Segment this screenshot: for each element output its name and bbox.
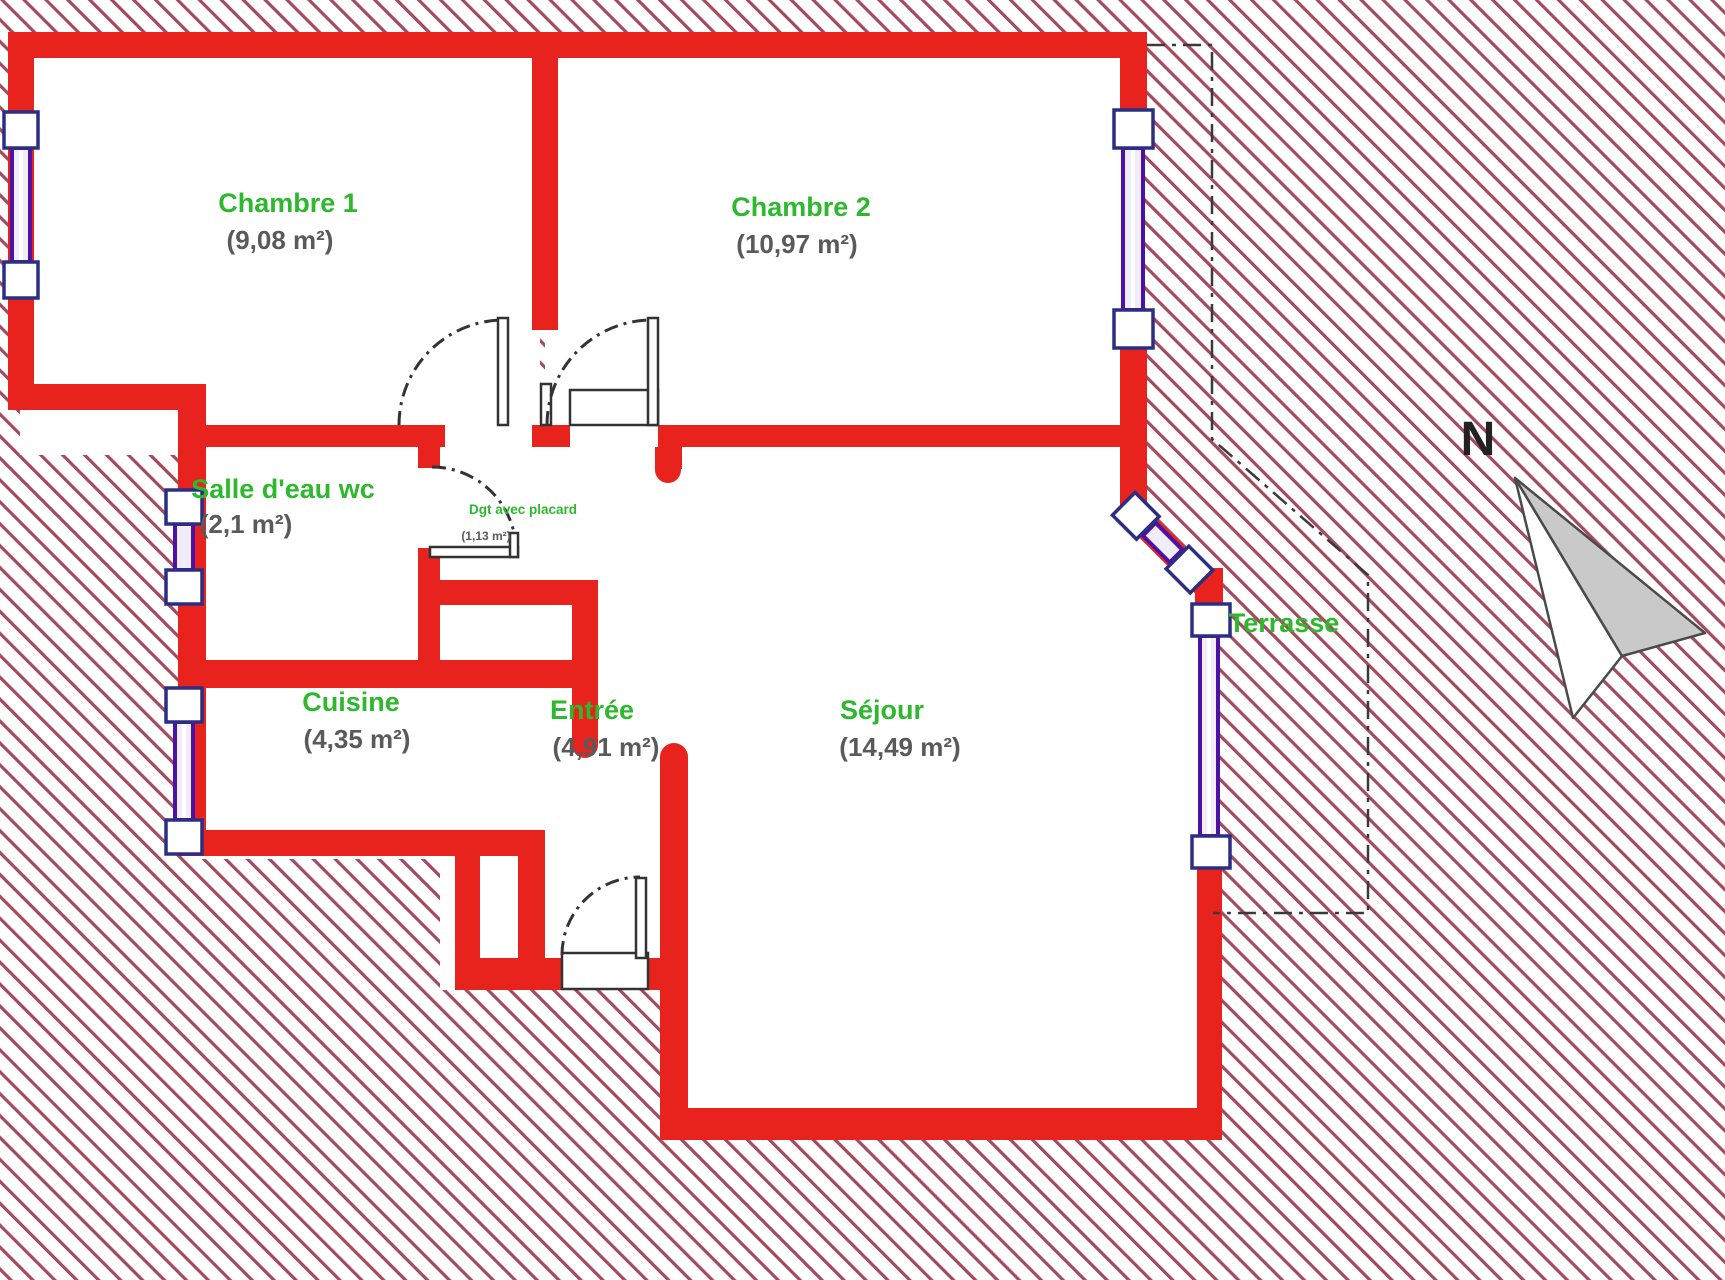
room-area: (2,1 m²)	[200, 509, 292, 539]
window-box	[1114, 310, 1153, 348]
wall-shaft-right	[518, 856, 545, 960]
wall-bath-divider-bottom	[418, 548, 440, 670]
interior-sejour	[660, 447, 1130, 1108]
door-leaf-end	[510, 533, 518, 557]
wall-chambres-divider	[532, 32, 558, 330]
room-area: (1,13 m²)	[461, 529, 510, 543]
room-name: Entrée	[550, 695, 634, 725]
window-box	[1114, 110, 1153, 148]
room-name: Terrasse	[1229, 608, 1340, 638]
wall-cap-dgt-sejour	[655, 457, 681, 483]
room-label-terrasse: Terrasse	[1229, 608, 1340, 638]
wall-chambres-bottom-c	[658, 425, 1147, 447]
window-box	[4, 262, 38, 298]
room-area: (9,08 m²)	[227, 225, 334, 255]
room-area: (4,91 m²)	[553, 732, 660, 762]
wall-chambre1-bottom-left	[8, 384, 206, 410]
wall-bath-bottom	[178, 660, 598, 688]
door-leaf	[636, 878, 646, 958]
door-jamb	[570, 390, 658, 425]
room-name: Salle d'eau wc	[191, 474, 375, 504]
wall-sejour-bottom	[660, 1108, 1222, 1140]
north-label: N	[1461, 413, 1496, 466]
window-box	[1192, 604, 1230, 636]
room-name: Chambre 1	[218, 188, 358, 218]
room-area: (14,49 m²)	[839, 732, 960, 762]
floor-plan-drawing: Chambre 1 (9,08 m²) Chambre 2 (10,97 m²)…	[0, 0, 1725, 1280]
room-name: Dgt avec placard	[469, 502, 577, 517]
door-leaf	[430, 547, 518, 557]
window-glazing	[175, 524, 193, 570]
floor-plan-page: Chambre 1 (9,08 m²) Chambre 2 (10,97 m²)…	[0, 0, 1725, 1280]
room-name: Chambre 2	[731, 192, 871, 222]
window-box	[4, 112, 38, 148]
wall-placard-top	[418, 580, 598, 605]
window-box	[1192, 836, 1230, 868]
wall-sejour-right-lower	[1197, 863, 1222, 1140]
window-box	[166, 688, 202, 722]
wall-chambres-bottom-b	[532, 425, 570, 447]
door-leaf	[648, 318, 658, 425]
wall-top	[8, 32, 1147, 58]
room-area: (4,35 m²)	[304, 724, 411, 754]
wall-entree-sejour	[660, 756, 688, 1140]
wall-bath-divider-top	[418, 447, 440, 468]
room-name: Séjour	[840, 695, 925, 725]
wall-cap-entree-sejour	[660, 743, 688, 771]
wall-chambre2-right-mid	[1120, 348, 1147, 515]
door-leaf	[498, 318, 508, 425]
room-name: Cuisine	[302, 687, 400, 717]
wall-chambres-bottom-a	[178, 425, 445, 447]
window-box	[166, 820, 202, 854]
wall-cuisine-bottom	[178, 830, 545, 856]
window-box	[166, 570, 202, 604]
wall-entry-sill-left	[455, 958, 565, 990]
room-area: (10,97 m²)	[736, 229, 857, 259]
